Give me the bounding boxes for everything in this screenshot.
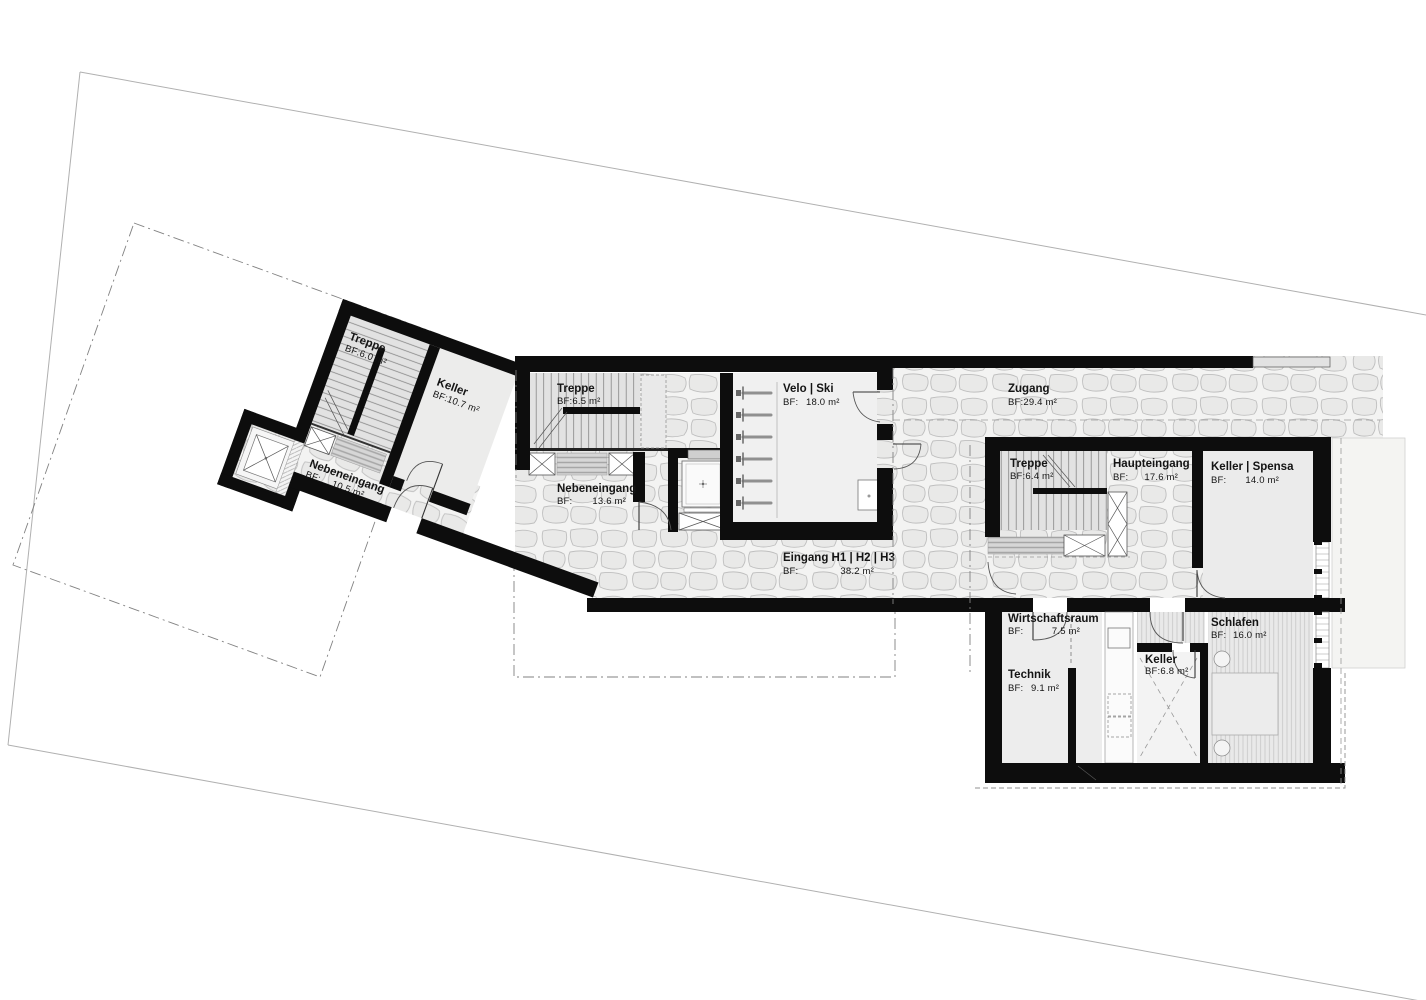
property-line-top [80, 72, 1426, 315]
stair-mid [528, 373, 668, 451]
room-bf-nebeneingang-mid: BF: [557, 496, 572, 507]
stool [1214, 740, 1230, 756]
room-area-treppe-mid: BF:6.5 m² [557, 396, 601, 407]
room-label-treppe-main: Treppe [1010, 458, 1048, 470]
room-bf-wirtschaftsraum: BF: [1008, 626, 1023, 637]
stair-upper-flight-dashed [641, 375, 666, 448]
room-label-wirtschaftsraum: Wirtschaftsraum [1008, 613, 1099, 625]
window-band-east-upper [1314, 540, 1329, 600]
terrace-area [1332, 438, 1405, 668]
floor-plan-canvas: Treppe BF:6.0 m² Keller BF:10.7 m² Neben… [0, 0, 1426, 1000]
floor-plan-page: Treppe BF:6.0 m² Keller BF:10.7 m² Neben… [0, 0, 1426, 1000]
room-label-zugang: Zugang [1008, 383, 1050, 395]
room-label-keller-small: Keller [1145, 654, 1177, 666]
mid-landing [529, 453, 635, 475]
room-area-zugang: BF:29.4 m² [1008, 397, 1057, 408]
room-label-schlafen: Schlafen [1211, 617, 1259, 629]
room-label-haupteingang: Haupteingang [1113, 458, 1190, 470]
room-bf-schlafen: BF: [1211, 630, 1226, 641]
room-area-technik: 9.1 m² [1031, 683, 1059, 694]
room-label-velo-ski: Velo | Ski [783, 383, 834, 395]
room-bf-keller-spensa: BF: [1211, 475, 1226, 486]
window-band-east-lower [1314, 610, 1329, 668]
floor-zugang [893, 356, 1383, 438]
stool [1214, 651, 1230, 667]
bottom-block: Wirtschaftsraum BF: 7.5 m² Technik BF: 9… [985, 610, 1345, 783]
room-area-velo-ski: 18.0 m² [806, 397, 840, 408]
entrance-mat [988, 537, 1064, 554]
room-velo-ski [733, 373, 880, 522]
elevator-door [684, 508, 722, 512]
entrance-mat [557, 453, 607, 475]
room-label-technik: Technik [1008, 669, 1051, 681]
corridor-floor [1137, 612, 1205, 643]
room-bf-velo-ski: BF: [783, 397, 798, 408]
room-area-nebeneingang-mid: 13.6 m² [592, 496, 626, 507]
room-keller-spensa [1203, 451, 1313, 598]
room-area-treppe-main: BF:6.4 m² [1010, 471, 1054, 482]
room-area-keller-spensa: 14.0 m² [1245, 475, 1279, 486]
stair-handrail [1033, 488, 1107, 494]
room-area-haupteingang: 17.6 m² [1144, 472, 1178, 483]
retaining-wall [1253, 357, 1330, 367]
shelf-strip [1105, 612, 1133, 763]
stair-handrail [563, 407, 640, 414]
room-area-keller-small: BF:6.8 m² [1145, 666, 1189, 677]
room-area-eingang: 38.2 m² [840, 566, 874, 577]
room-area-wirtschaftsraum: 7.5 m² [1052, 626, 1080, 637]
property-line-bottom [8, 745, 1426, 1000]
room-bf-eingang: BF: [783, 566, 798, 577]
room-area-schlafen: 16.0 m² [1233, 630, 1267, 641]
room-label-keller-spensa: Keller | Spensa [1211, 461, 1294, 473]
room-label-eingang: Eingang H1 | H2 | H3 [783, 552, 895, 564]
property-line-left [8, 72, 80, 745]
room-label-nebeneingang-mid: Nebeneingang [557, 483, 636, 495]
room-bf-technik: BF: [1008, 683, 1023, 694]
zugang-top-wall [893, 356, 1253, 368]
room-bf-haupteingang: BF: [1113, 472, 1128, 483]
bed [1212, 673, 1278, 735]
room-label-treppe-mid: Treppe [557, 383, 595, 395]
